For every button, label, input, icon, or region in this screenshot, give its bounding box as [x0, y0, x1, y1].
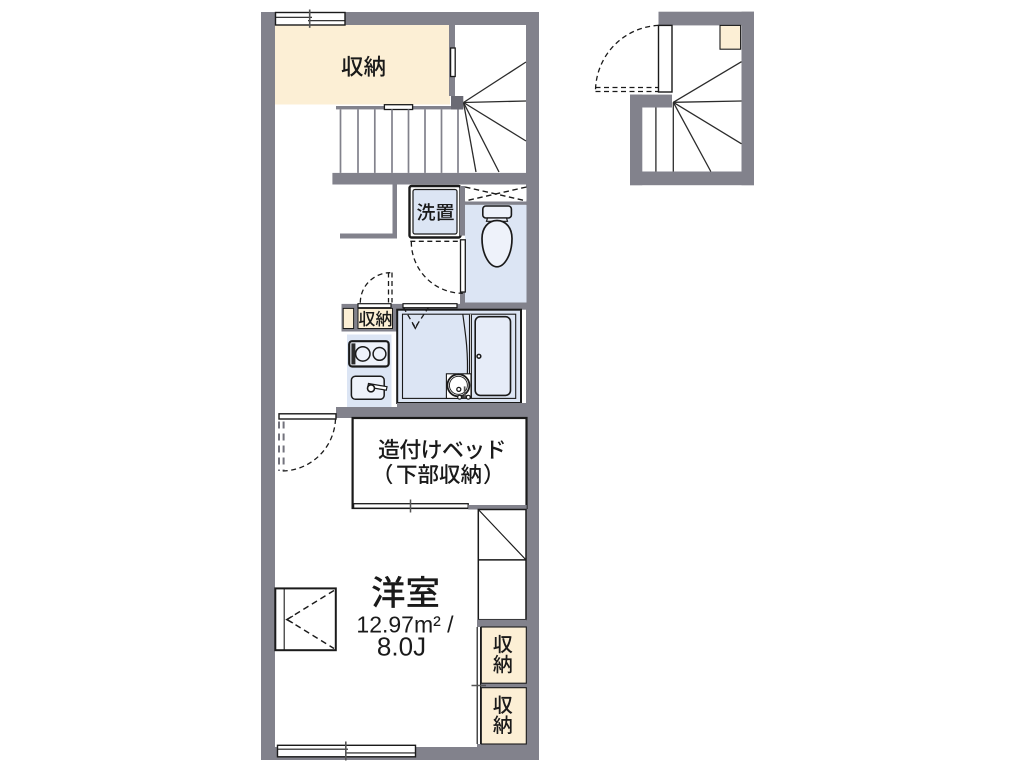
svg-text:8.0J: 8.0J: [377, 632, 426, 662]
